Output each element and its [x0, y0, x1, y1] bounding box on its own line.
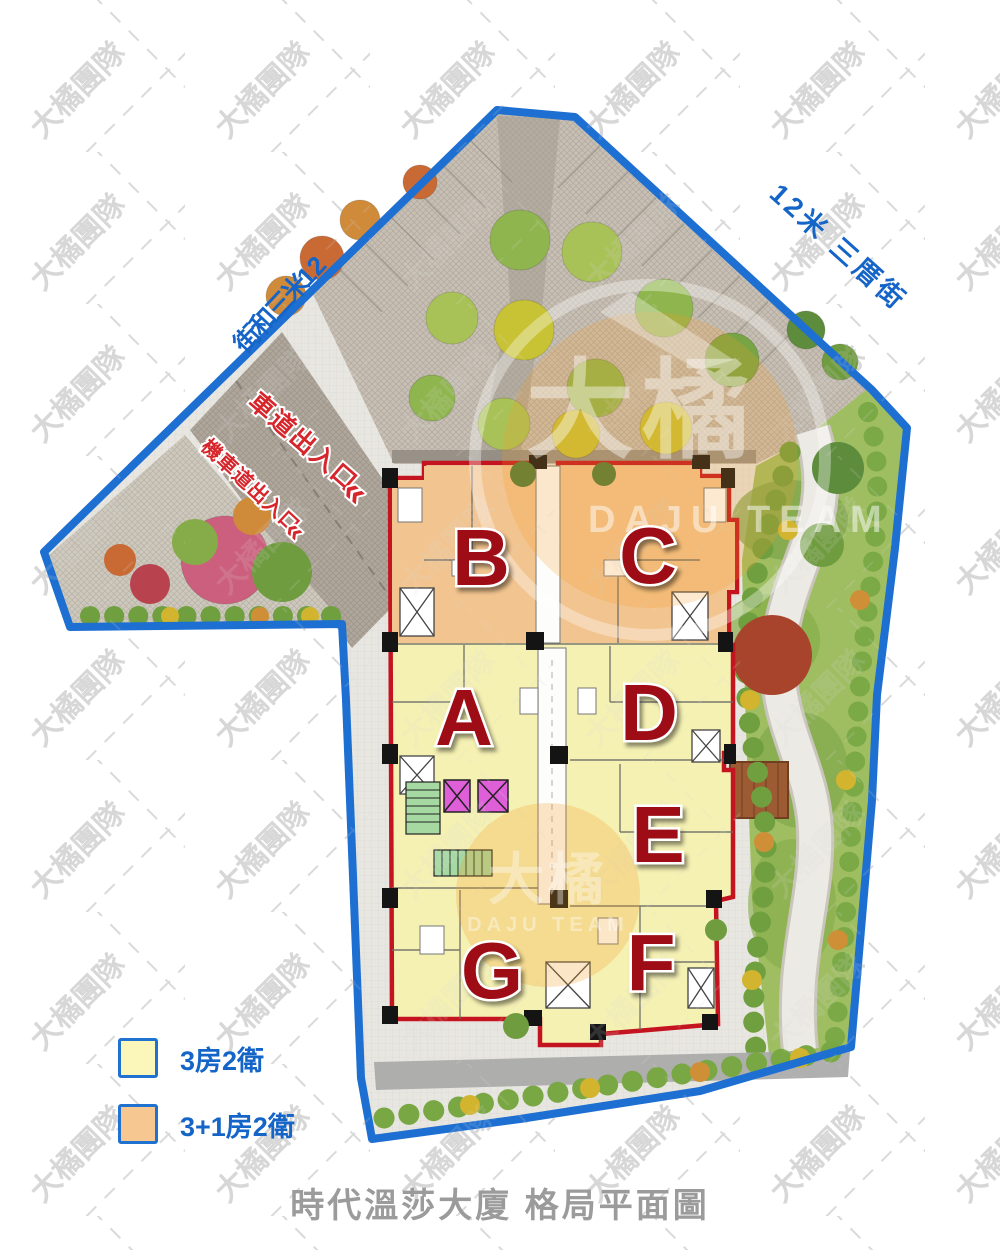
- unit-letter-c: C: [619, 511, 677, 600]
- brand-logo-text: 大橘: [526, 350, 758, 471]
- legend-row-3plus1br: 3+1房2衛: [118, 1104, 295, 1144]
- legend-label-3plus1br: 3+1房2衛: [180, 1105, 295, 1144]
- legend-swatch-3plus1br: [118, 1104, 158, 1144]
- unit-letter-d: D: [620, 668, 678, 757]
- page-title: 時代溫莎大廈 格局平面圖: [0, 1178, 1000, 1227]
- legend-label-3br: 3房2衛: [180, 1039, 264, 1078]
- unit-letter-g: G: [461, 926, 523, 1015]
- legend-swatch-3br: [118, 1038, 158, 1078]
- brand-logo-text-small: 大橘: [488, 848, 608, 911]
- floor-plan-page: 大橘團隊: [0, 0, 1000, 1250]
- unit-letter-f: F: [627, 918, 676, 1007]
- unit-letter-b: B: [452, 513, 510, 602]
- legend: 3房2衛 3+1房2衛: [118, 1038, 295, 1144]
- unit-letter-e: E: [631, 790, 684, 879]
- legend-row-3br: 3房2衛: [118, 1038, 295, 1078]
- unit-letter-a: A: [435, 673, 493, 762]
